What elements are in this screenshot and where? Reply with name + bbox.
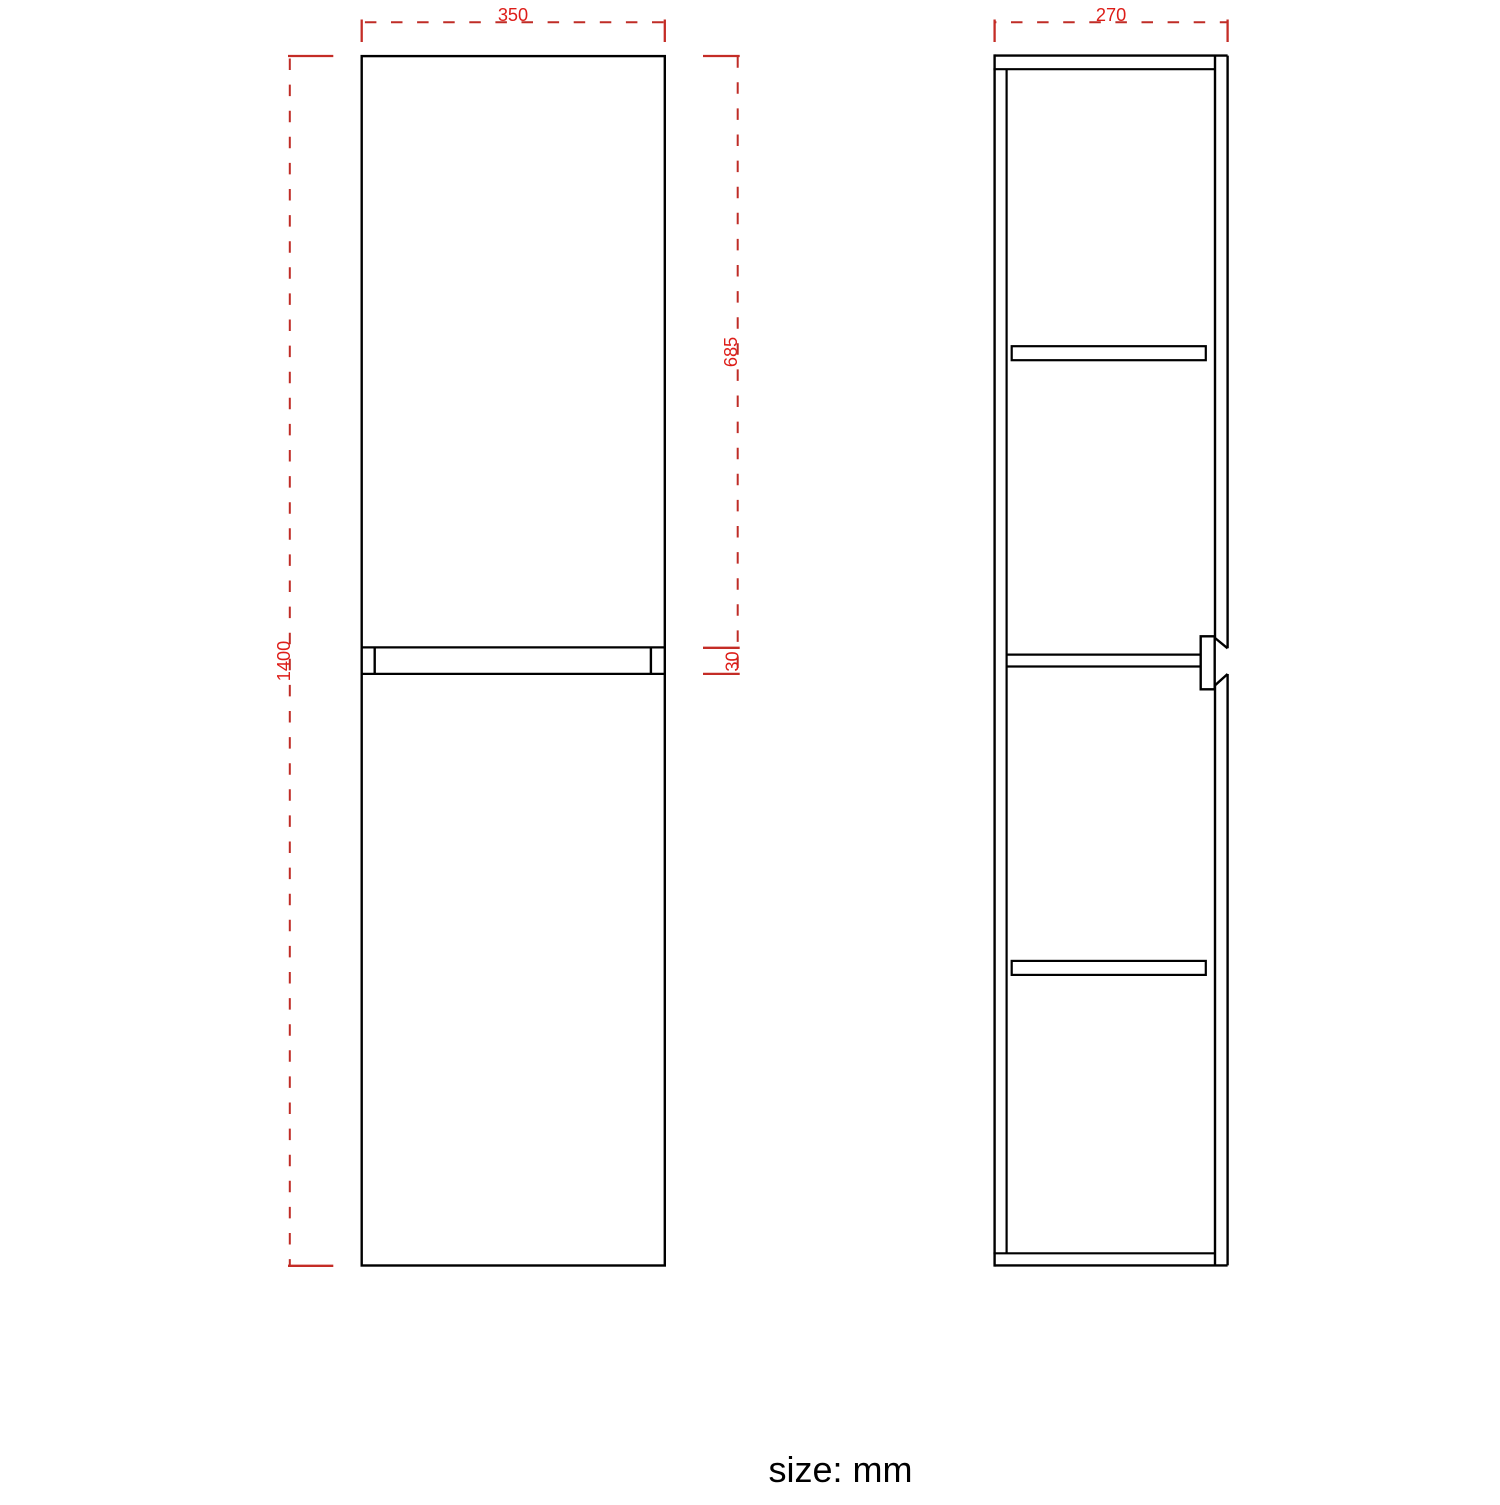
svg-text:1400: 1400 xyxy=(274,641,294,681)
svg-text:size: mm: size: mm xyxy=(769,1449,913,1490)
svg-text:685: 685 xyxy=(721,337,741,367)
svg-text:270: 270 xyxy=(1096,5,1126,25)
svg-text:350: 350 xyxy=(498,5,528,25)
svg-text:30: 30 xyxy=(722,651,742,671)
